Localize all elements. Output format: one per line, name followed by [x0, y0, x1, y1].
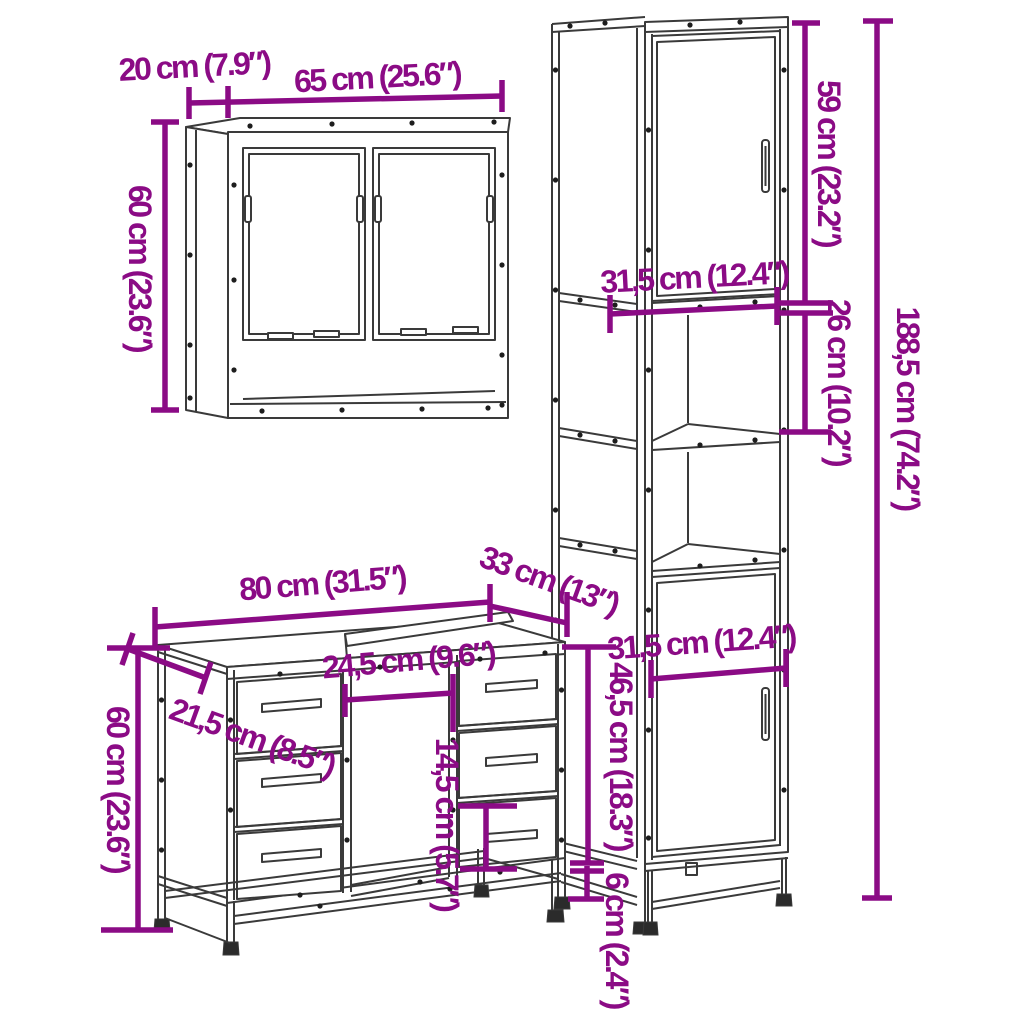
tall-bottom-door — [652, 568, 780, 857]
leg-foot — [554, 897, 570, 909]
tall-base-frame — [643, 857, 792, 935]
dim-label-tall-top-door-height: 59 cm (23.2″) — [811, 80, 847, 248]
mirror-cabinet-illustration — [186, 118, 510, 418]
dim-tall-bottom-door-height: 46,5 cm (18.3″) — [562, 647, 639, 863]
dimension-diagram: 20 cm (7.9″) 65 cm (25.6″) 60 cm (23.6″)… — [0, 0, 1024, 1024]
tall-cabinet-illustration — [547, 17, 792, 935]
vanity-right-drawers — [457, 654, 558, 867]
dim-label-mirror-width: 65 cm (25.6″) — [293, 55, 463, 100]
leg-foot — [474, 885, 489, 897]
leg-foot — [223, 942, 239, 955]
dim-mirror-height: 60 cm (23.6″) — [122, 122, 179, 410]
dim-label-vanity-drawer-height: 14,5 cm (5.7″) — [429, 738, 465, 912]
dim-label-tall-bottom-door-height: 46,5 cm (18.3″) — [603, 662, 639, 852]
dim-label-tall-leg-height: 6 cm (2.4″) — [599, 872, 635, 1009]
mirror-right-door — [373, 148, 495, 340]
door-handle — [375, 196, 381, 222]
mirror-left-door — [243, 148, 365, 340]
dim-vanity-height: 60 cm (23.6″) — [100, 648, 173, 930]
dim-label-vanity-height: 60 cm (23.6″) — [100, 706, 136, 874]
dim-tall-compartment-height: 26 cm (10.2″) — [778, 299, 857, 467]
vanity-left-drawers — [234, 674, 343, 899]
leg-foot — [776, 894, 792, 906]
dim-tall-total-height: 188,5 cm (74.2″) — [862, 21, 926, 898]
door-handle — [357, 196, 363, 222]
leg-foot — [643, 922, 658, 935]
dim-label-mirror-height: 60 cm (23.6″) — [122, 185, 158, 353]
hinge — [245, 196, 251, 222]
leg-foot — [547, 910, 564, 922]
dim-label-tall-compartment-height: 26 cm (10.2″) — [821, 299, 857, 467]
vanity-front-face — [227, 642, 565, 903]
tall-front-face — [643, 17, 792, 935]
dim-mirror-width-depth: 20 cm (7.9″) 65 cm (25.6″) — [118, 44, 502, 119]
dim-label-vanity-width: 80 cm (31.5″) — [238, 558, 408, 607]
dim-label-tall-total-height: 188,5 cm (74.2″) — [890, 306, 926, 511]
dim-label-mirror-depth: 20 cm (7.9″) — [118, 44, 272, 88]
bathroom-furniture-set-diagram: 20 cm (7.9″) 65 cm (25.6″) 60 cm (23.6″)… — [0, 0, 1024, 1024]
hinge — [487, 196, 493, 222]
